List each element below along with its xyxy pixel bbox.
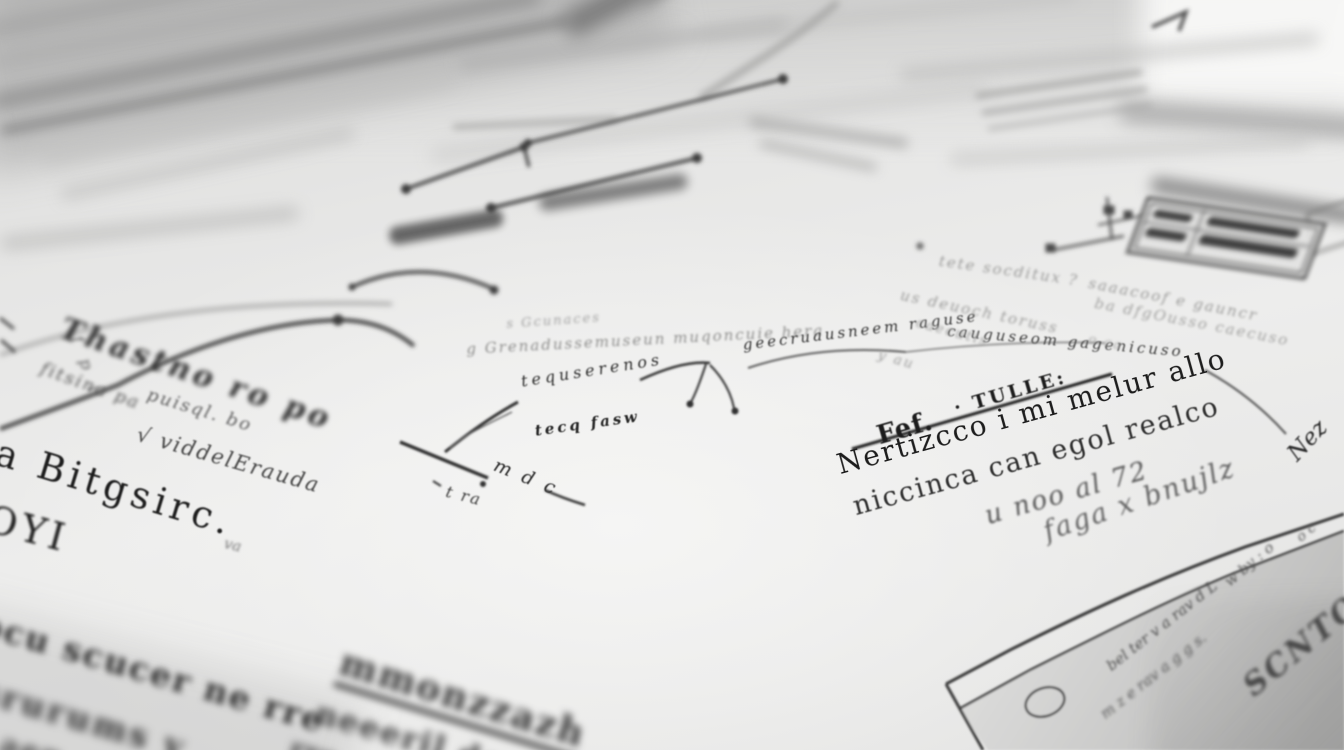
tiny-mark: va (222, 536, 243, 555)
bottom-right-haze (1150, 600, 1344, 750)
table-smudge (1206, 216, 1300, 238)
photo-scene: Thastno ro po fitsina pa f p i puisql. b… (0, 0, 1344, 750)
faint-curve (0, 303, 392, 355)
table-smudge (1153, 209, 1193, 222)
table-smudge (1145, 227, 1188, 242)
far-blur-lines (453, 2, 1152, 129)
corner-arrow-mark (1152, 12, 1186, 31)
